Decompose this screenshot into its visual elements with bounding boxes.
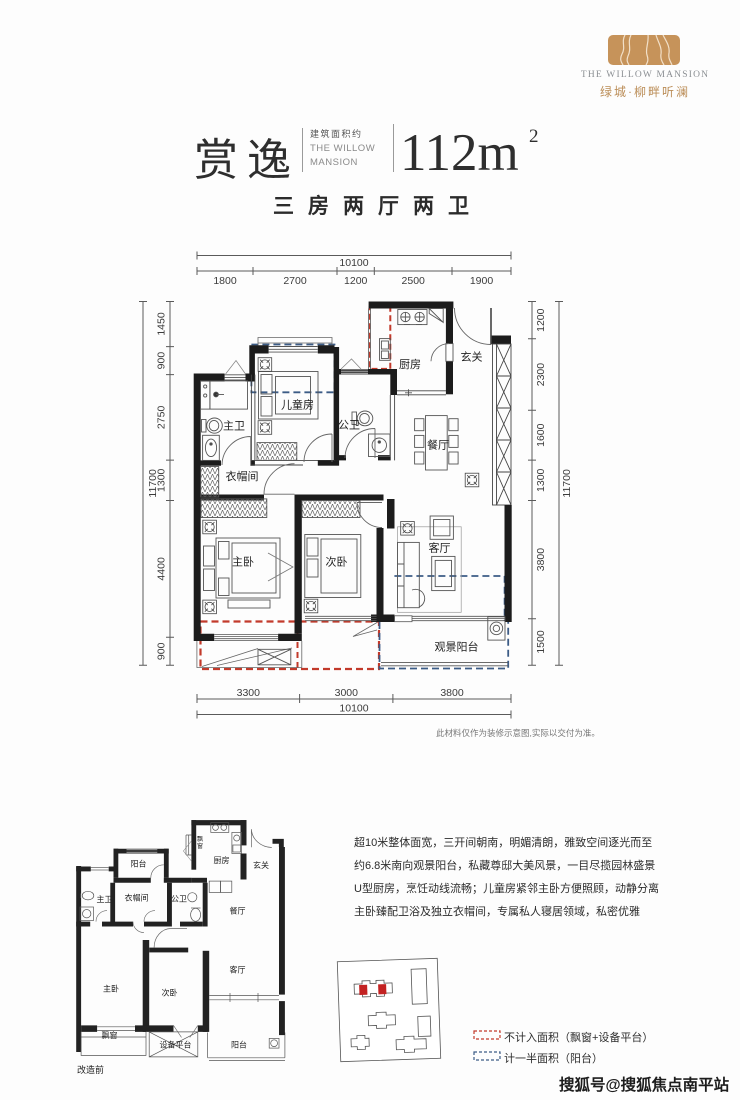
svg-text:观景阳台: 观景阳台 [435,640,479,654]
svg-text:主卧: 主卧 [103,984,119,994]
svg-text:次卧: 次卧 [162,988,178,998]
svg-text:1300: 1300 [535,468,547,492]
svg-text:主卫: 主卫 [97,894,113,904]
svg-text:衣帽间: 衣帽间 [226,469,259,483]
svg-text:2300: 2300 [535,363,547,387]
svg-text:厨房: 厨房 [399,358,421,371]
svg-text:儿童房: 儿童房 [281,398,314,412]
svg-text:玄关: 玄关 [461,350,483,364]
svg-text:10100: 10100 [339,703,368,715]
svg-text:客厅: 客厅 [230,965,246,975]
svg-text:11700: 11700 [561,469,573,498]
svg-text:阳台: 阳台 [131,859,147,869]
svg-text:4400: 4400 [156,557,168,581]
svg-text:衣帽间: 衣帽间 [125,893,149,903]
svg-text:阳台: 阳台 [231,1040,247,1050]
svg-text:1500: 1500 [535,630,547,654]
svg-text:1200: 1200 [535,308,547,332]
svg-text:1800: 1800 [213,275,237,287]
svg-text:2700: 2700 [283,275,307,287]
svg-text:设备平台: 设备平台 [160,1040,192,1050]
svg-text:玄关: 玄关 [253,860,269,870]
svg-text:厨房: 厨房 [214,855,230,865]
svg-text:此材料仅作为装修示意图,实际以交付为准。: 此材料仅作为装修示意图,实际以交付为准。 [436,728,600,738]
svg-text:主卫: 主卫 [223,420,245,433]
svg-text:主卧: 主卧 [232,556,254,569]
svg-text:次卧: 次卧 [326,555,348,569]
svg-text:1900: 1900 [470,275,494,287]
svg-text:窗: 窗 [197,842,203,850]
svg-text:飘: 飘 [197,836,203,843]
svg-text:餐厅: 餐厅 [427,438,449,452]
svg-text:3800: 3800 [535,548,547,572]
svg-text:3000: 3000 [335,687,359,699]
svg-text:公卫: 公卫 [338,420,360,432]
svg-text:900: 900 [156,642,168,660]
svg-text:10100: 10100 [339,257,368,269]
svg-text:客厅: 客厅 [429,541,451,555]
svg-text:3800: 3800 [440,687,464,699]
svg-text:1200: 1200 [344,275,368,287]
svg-text:3300: 3300 [237,687,261,699]
svg-text:900: 900 [156,352,168,370]
svg-text:1600: 1600 [535,423,547,447]
svg-text:2750: 2750 [156,406,168,430]
svg-text:公卫: 公卫 [171,895,187,904]
svg-text:2500: 2500 [402,275,426,287]
svg-text:餐厅: 餐厅 [230,907,246,916]
svg-text:1450: 1450 [156,312,168,336]
svg-text:1300: 1300 [156,468,168,492]
svg-text:飘窗: 飘窗 [102,1030,118,1040]
svg-text:改造前: 改造前 [77,1064,104,1075]
